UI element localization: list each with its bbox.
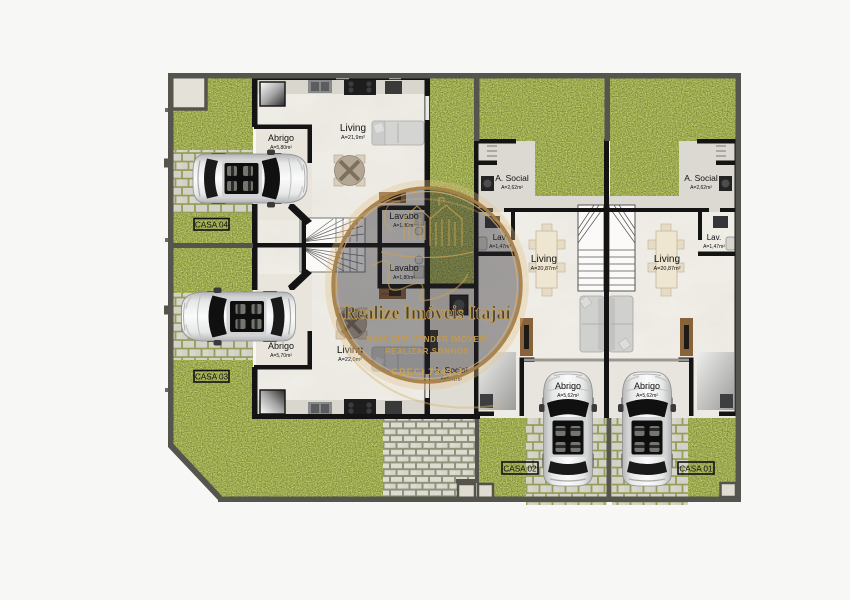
svg-text:A=2,62m²: A=2,62m² <box>690 185 712 191</box>
svg-text:Abrigo: Abrigo <box>634 381 660 391</box>
svg-text:Living: Living <box>340 123 366 134</box>
svg-text:Abrigo: Abrigo <box>555 381 581 391</box>
svg-text:A=2,62m²: A=2,62m² <box>501 185 523 191</box>
svg-text:CASA 03: CASA 03 <box>195 373 229 382</box>
svg-text:Abrigo: Abrigo <box>268 341 294 351</box>
svg-text:CASA 01: CASA 01 <box>679 465 713 474</box>
svg-text:A=5,62m²: A=5,62m² <box>636 393 658 399</box>
svg-text:A=5,70m²: A=5,70m² <box>270 353 292 359</box>
svg-text:Lav.: Lav. <box>707 233 722 242</box>
svg-text:REALIZAR SONHOS: REALIZAR SONHOS <box>385 347 469 356</box>
svg-text:A=5,80m²: A=5,80m² <box>270 145 292 151</box>
svg-text:A=5,62m²: A=5,62m² <box>557 393 579 399</box>
svg-text:A=1,47m²: A=1,47m² <box>703 244 725 250</box>
svg-text:Abrigo: Abrigo <box>268 133 294 143</box>
svg-text:Living: Living <box>531 254 557 265</box>
svg-text:A. Social: A. Social <box>684 173 718 183</box>
svg-text:A=21,9m²: A=21,9m² <box>341 135 365 141</box>
svg-text:A. Social: A. Social <box>495 173 529 183</box>
svg-text:A=20,87m²: A=20,87m² <box>653 266 680 272</box>
svg-text:CRECI 7843-J: CRECI 7843-J <box>391 367 462 378</box>
svg-text:Realize Imóveis Itajaí: Realize Imóveis Itajaí <box>344 303 512 324</box>
svg-text:A=20,87m²: A=20,87m² <box>530 266 557 272</box>
svg-text:MAIS QUE VENDER IMÓVEIS: MAIS QUE VENDER IMÓVEIS <box>366 335 488 344</box>
svg-text:Living: Living <box>654 254 680 265</box>
svg-text:CASA 04: CASA 04 <box>195 221 229 230</box>
svg-text:CASA 02: CASA 02 <box>503 465 537 474</box>
